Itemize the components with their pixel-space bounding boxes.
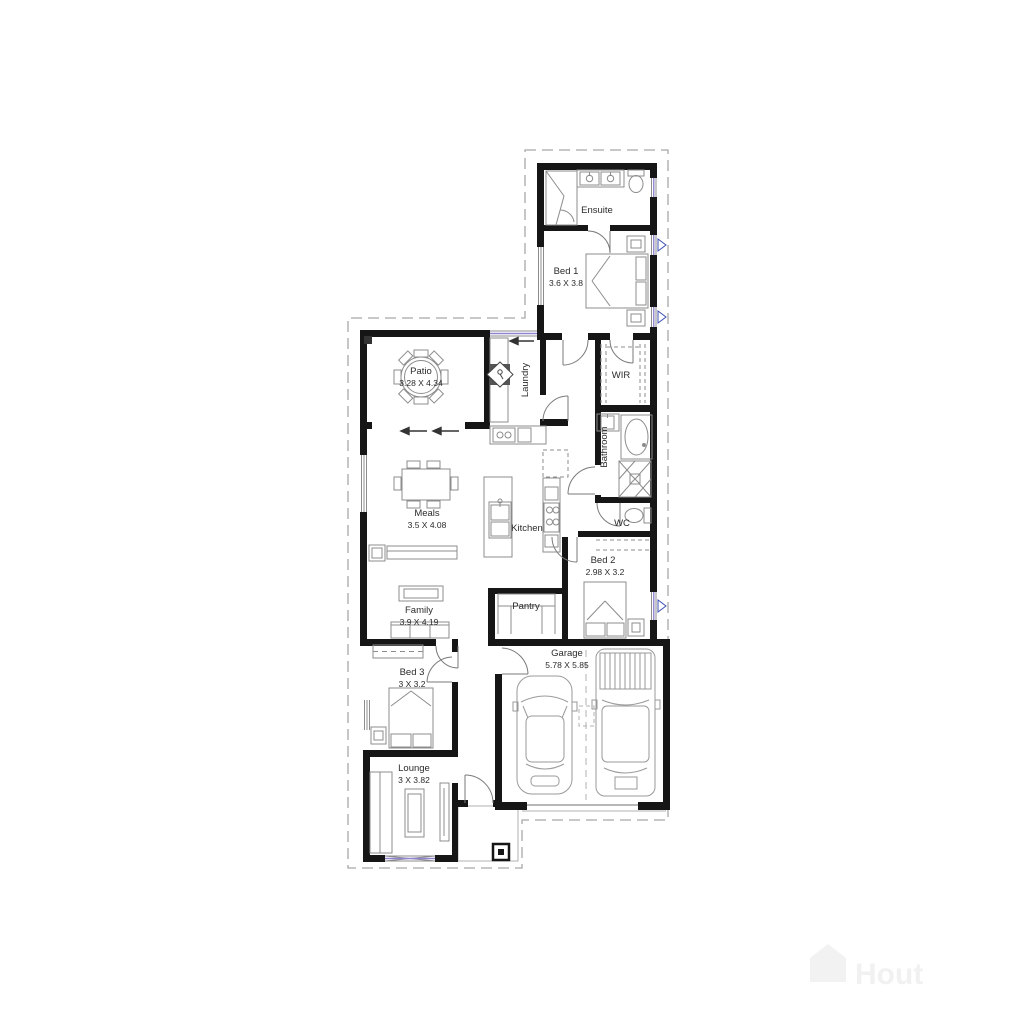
patio-furniture bbox=[364, 336, 448, 404]
label-pantry: Pantry bbox=[512, 601, 540, 612]
label-bathroom: Bathroom bbox=[599, 426, 610, 467]
floor-plan-svg: Ensuite Bed 1 3.6 X 3.8 Patio 3.28 X 4.3… bbox=[0, 0, 1024, 1024]
downpipe-icon bbox=[364, 336, 372, 344]
bed1-furniture bbox=[586, 236, 648, 326]
label-lounge: Lounge bbox=[398, 763, 430, 774]
watermark-house-icon bbox=[810, 944, 846, 982]
kitchen-fixtures bbox=[484, 426, 568, 557]
label-garage: Garage bbox=[551, 648, 583, 659]
watermark-text: Hout bbox=[855, 958, 923, 991]
dims-bed3: 3 X 3.2 bbox=[399, 679, 426, 689]
bed3-furniture bbox=[371, 645, 433, 748]
laundry-fixtures bbox=[487, 338, 513, 422]
dims-patio: 3.28 X 4.34 bbox=[399, 378, 443, 388]
car-icon bbox=[513, 676, 577, 794]
window-opening-markers bbox=[658, 239, 666, 612]
shower-icon bbox=[619, 461, 651, 497]
label-bed1: Bed 1 bbox=[554, 266, 579, 277]
ensuite-toilet-icon bbox=[628, 170, 644, 193]
label-meals: Meals bbox=[414, 508, 440, 519]
floor-plan-page: Ensuite Bed 1 3.6 X 3.8 Patio 3.28 X 4.3… bbox=[0, 0, 1024, 1024]
label-ensuite: Ensuite bbox=[581, 205, 613, 216]
label-bed2: Bed 2 bbox=[591, 555, 616, 566]
label-wc: WC bbox=[614, 518, 630, 529]
walls bbox=[360, 163, 670, 862]
label-patio: Patio bbox=[410, 366, 432, 377]
label-wir: WIR bbox=[612, 370, 631, 381]
porch-outline bbox=[458, 806, 518, 861]
dims-family: 3.9 X 4.19 bbox=[400, 617, 439, 627]
garage-contents bbox=[513, 649, 660, 800]
dims-bed2: 2.98 X 3.2 bbox=[586, 567, 625, 577]
dims-bed1: 3.6 X 3.8 bbox=[549, 278, 583, 288]
label-family: Family bbox=[405, 605, 433, 616]
ensuite-fixtures bbox=[546, 170, 644, 225]
dims-lounge: 3 X 3.82 bbox=[398, 775, 430, 785]
dims-meals: 3.5 X 4.08 bbox=[408, 520, 447, 530]
label-laundry: Laundry bbox=[520, 363, 531, 398]
bath-icon bbox=[621, 415, 652, 459]
dims-garage: 5.78 X 5.85 bbox=[545, 660, 589, 670]
kitchen-bench-east bbox=[543, 478, 560, 552]
tv-unit-icon bbox=[440, 783, 449, 841]
pantry-shelving bbox=[498, 594, 555, 634]
label-kitchen: Kitchen bbox=[511, 523, 543, 534]
meals-furniture bbox=[394, 461, 458, 508]
fridge-space bbox=[543, 450, 568, 477]
label-bed3: Bed 3 bbox=[400, 667, 425, 678]
ute-icon bbox=[592, 649, 660, 796]
kitchen-island bbox=[484, 477, 512, 557]
watermark: Hout bbox=[810, 944, 923, 991]
